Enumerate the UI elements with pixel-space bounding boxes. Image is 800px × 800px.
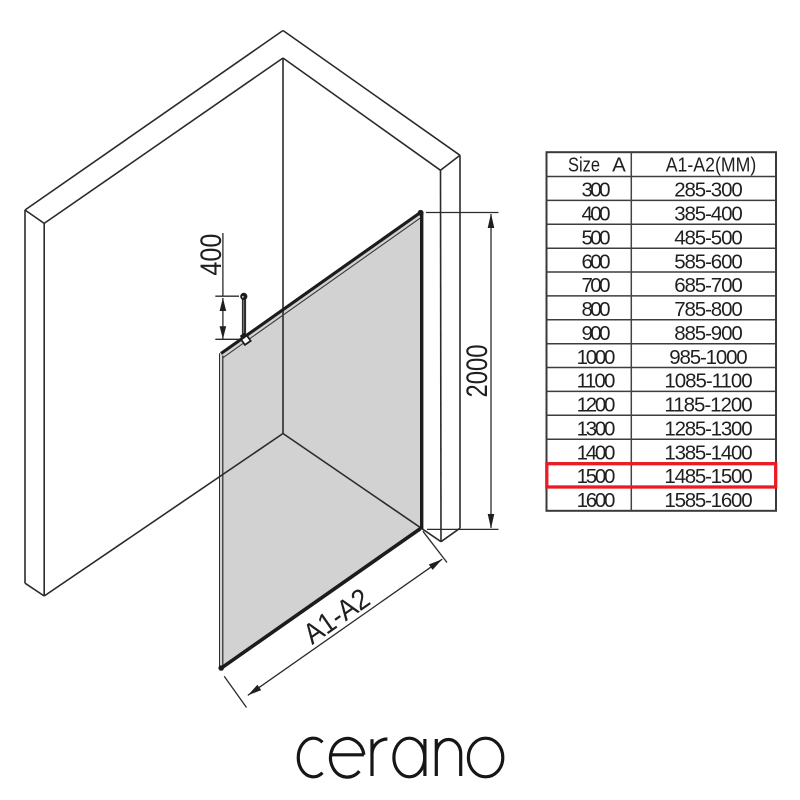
- svg-text:1185-1200: 1185-1200: [664, 394, 752, 417]
- svg-text:800: 800: [581, 298, 610, 321]
- svg-text:400: 400: [581, 203, 610, 226]
- svg-text:685-700: 685-700: [674, 274, 743, 297]
- svg-text:885-900: 885-900: [674, 322, 743, 345]
- svg-text:1585-1600: 1585-1600: [664, 489, 752, 512]
- svg-text:1000: 1000: [577, 346, 616, 369]
- svg-text:785-800: 785-800: [674, 298, 743, 321]
- svg-text:1285-1300: 1285-1300: [664, 418, 752, 441]
- svg-text:A: A: [612, 154, 626, 177]
- svg-text:300: 300: [581, 179, 610, 202]
- svg-text:700: 700: [581, 274, 610, 297]
- svg-text:285-300: 285-300: [674, 179, 743, 202]
- svg-text:1385-1400: 1385-1400: [664, 441, 752, 464]
- svg-text:1200: 1200: [577, 394, 616, 417]
- svg-text:485-500: 485-500: [674, 226, 743, 249]
- svg-text:1500: 1500: [577, 465, 616, 488]
- svg-text:1100: 1100: [577, 370, 616, 393]
- svg-text:1600: 1600: [577, 489, 616, 512]
- svg-text:A1-A2(MM): A1-A2(MM): [666, 154, 757, 177]
- svg-text:1085-1100: 1085-1100: [664, 370, 752, 393]
- svg-text:1400: 1400: [577, 441, 616, 464]
- svg-text:400: 400: [195, 234, 228, 276]
- svg-text:900: 900: [581, 322, 610, 345]
- svg-text:500: 500: [581, 226, 610, 249]
- svg-text:1300: 1300: [577, 418, 616, 441]
- svg-text:1485-1500: 1485-1500: [664, 465, 752, 488]
- svg-text:2000: 2000: [461, 345, 494, 398]
- svg-text:985-1000: 985-1000: [669, 346, 747, 369]
- svg-text:385-400: 385-400: [674, 203, 743, 226]
- svg-text:600: 600: [581, 250, 610, 273]
- svg-text:585-600: 585-600: [674, 250, 743, 273]
- svg-text:Size: Size: [568, 154, 600, 177]
